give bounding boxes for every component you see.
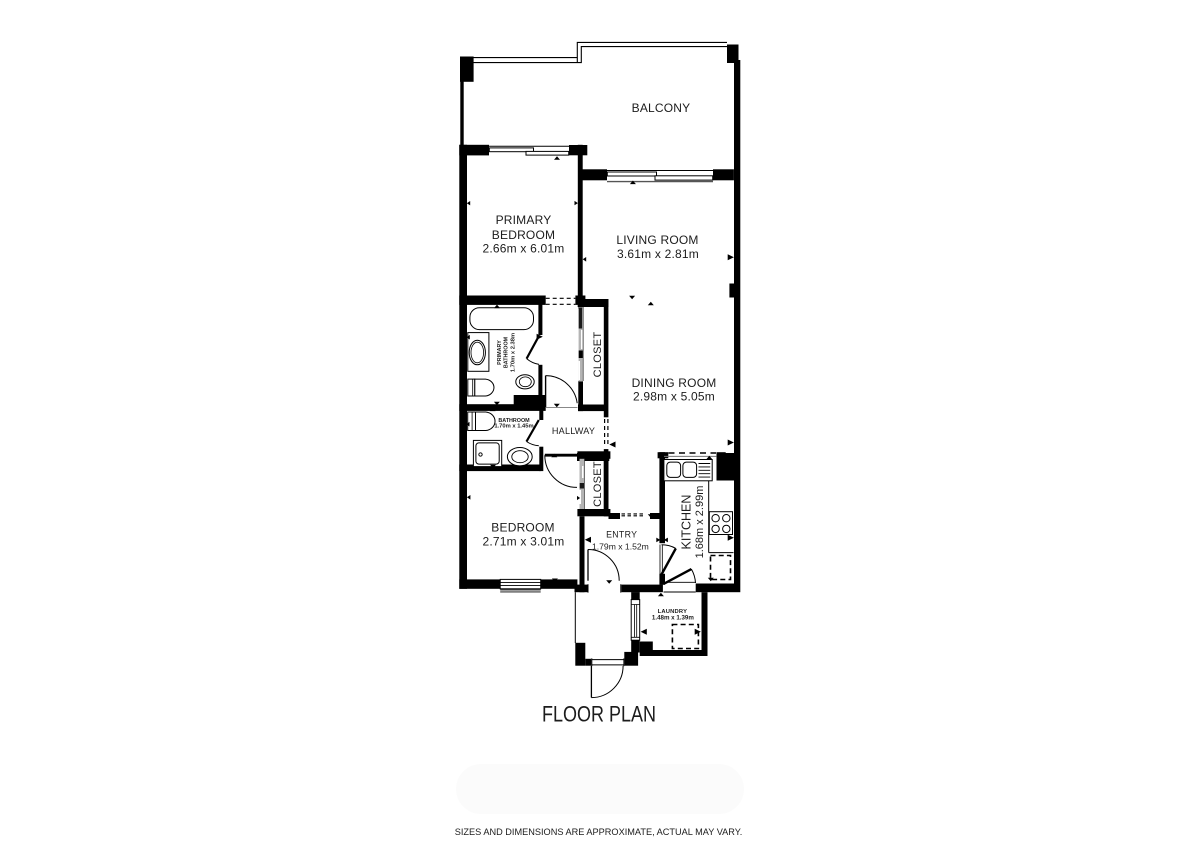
svg-text:1.79m x 1.52m: 1.79m x 1.52m	[592, 541, 649, 551]
svg-text:1.70m x 1.45m: 1.70m x 1.45m	[494, 424, 533, 430]
svg-text:BEDROOM: BEDROOM	[491, 521, 554, 535]
svg-text:DINING ROOM: DINING ROOM	[632, 376, 717, 390]
svg-text:2.98m x 5.05m: 2.98m x 5.05m	[633, 390, 715, 404]
svg-text:1.68m x 2.99m: 1.68m x 2.99m	[694, 486, 706, 559]
svg-text:KITCHEN: KITCHEN	[680, 495, 694, 550]
svg-text:1.70m x 2.38m: 1.70m x 2.38m	[511, 333, 517, 372]
svg-text:CLOSET: CLOSET	[592, 332, 604, 378]
svg-text:CLOSET: CLOSET	[592, 461, 604, 507]
svg-text:FLOOR PLAN: FLOOR PLAN	[542, 702, 656, 727]
svg-text:2.66m x 6.01m: 2.66m x 6.01m	[483, 242, 565, 256]
svg-text:PRIMARY: PRIMARY	[496, 213, 552, 227]
svg-text:BATHROOM: BATHROOM	[504, 336, 510, 368]
svg-text:SIZES AND DIMENSIONS ARE APPRO: SIZES AND DIMENSIONS ARE APPROXIMATE, AC…	[455, 827, 743, 837]
svg-text:PRIMARY: PRIMARY	[497, 340, 503, 365]
svg-text:HALLWAY: HALLWAY	[552, 426, 595, 436]
svg-text:ENTRY: ENTRY	[606, 529, 637, 539]
svg-text:LIVING ROOM: LIVING ROOM	[616, 233, 698, 247]
svg-text:BEDROOM: BEDROOM	[492, 228, 555, 242]
svg-text:BALCONY: BALCONY	[632, 101, 691, 115]
svg-text:3.61m x 2.81m: 3.61m x 2.81m	[617, 247, 699, 261]
svg-text:1.48m x 1.39m: 1.48m x 1.39m	[652, 614, 694, 621]
svg-text:2.71m x 3.01m: 2.71m x 3.01m	[483, 535, 565, 549]
